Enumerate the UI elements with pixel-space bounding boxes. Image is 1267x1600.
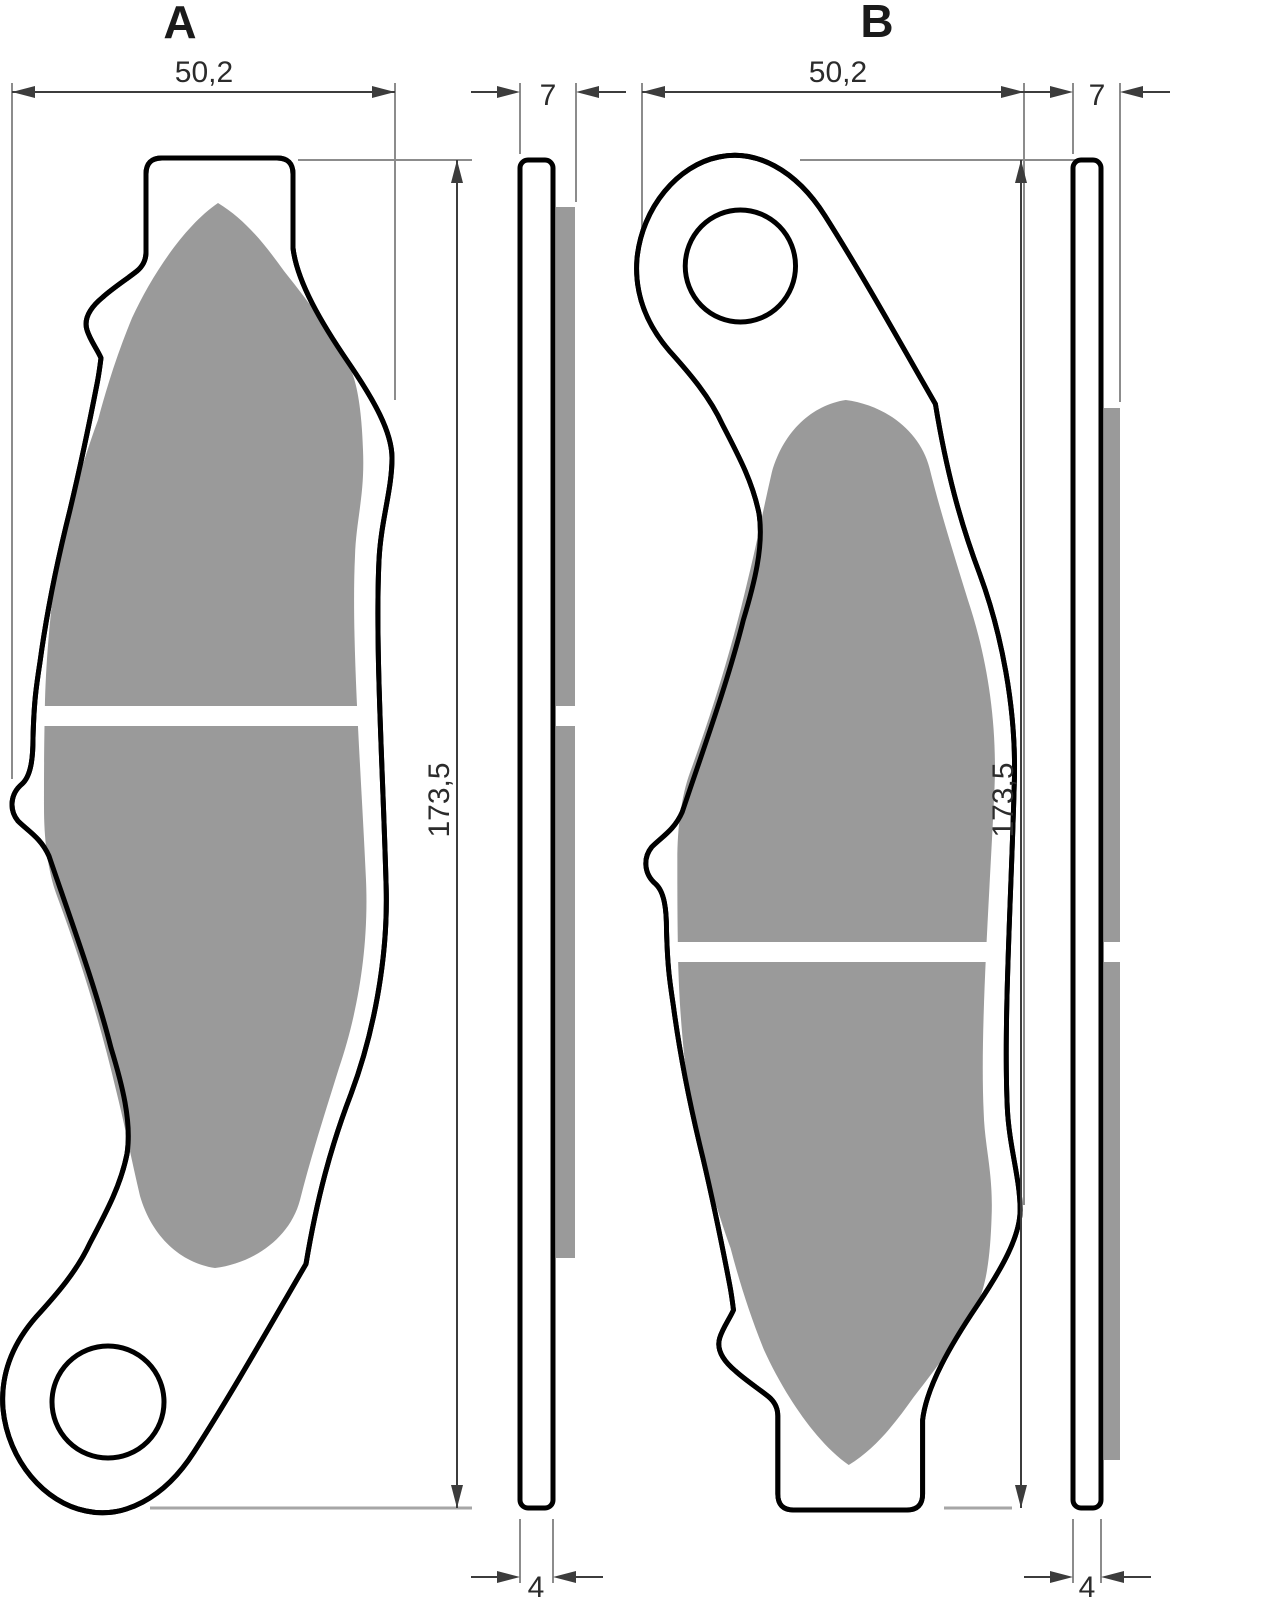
a-height-arrow-top	[451, 160, 463, 183]
pad-b-mounting-hole	[685, 210, 795, 322]
a-height-arrow-bottom	[451, 1485, 463, 1508]
a-thickness-arrow-right	[576, 86, 599, 98]
technical-drawing: A	[0, 0, 1267, 1600]
b-plate-value: 4	[1079, 1571, 1096, 1600]
view-a-label: A	[163, 0, 196, 48]
drawing-page: A	[0, 0, 1267, 1600]
b-thickness-dimension: 7	[1024, 79, 1170, 112]
view-b-label: B	[860, 0, 893, 47]
b-thickness-value: 7	[1089, 79, 1106, 112]
pad-a-wear-groove	[40, 706, 375, 726]
pad-b-front-view	[637, 155, 1021, 1510]
b-plate-dimension: 4	[1024, 1571, 1151, 1600]
view-a: A	[3, 0, 626, 1600]
pad-a-friction-material	[44, 203, 366, 1268]
b-plate-arrow-right	[1101, 1571, 1124, 1583]
pad-b-friction-material	[677, 400, 995, 1465]
a-width-value: 50,2	[175, 56, 233, 89]
a-plate-arrow-left	[497, 1571, 520, 1583]
b-thickness-arrow-left	[1050, 86, 1073, 98]
pad-a-side-groove-notch	[554, 706, 580, 726]
a-thickness-dimension: 7	[471, 79, 626, 112]
b-width-dimension: 50,2	[642, 56, 1024, 98]
pad-a-side-friction-strip	[556, 207, 575, 1258]
pad-b-wear-groove	[673, 942, 1003, 962]
b-height-dimension: 173,5	[987, 160, 1027, 1508]
pad-b-side-groove-notch	[1102, 942, 1122, 962]
b-thickness-arrow-right	[1120, 86, 1143, 98]
a-plate-arrow-right	[553, 1571, 576, 1583]
a-thickness-arrow-left	[497, 86, 520, 98]
pad-b-side-backplate	[1073, 160, 1101, 1508]
a-height-dimension: 173,5	[423, 160, 463, 1508]
pad-b-side-friction-strip	[1104, 408, 1120, 1460]
pad-a-mounting-hole	[52, 1346, 164, 1458]
b-height-value: 173,5	[987, 762, 1020, 837]
b-plate-arrow-left	[1050, 1571, 1073, 1583]
a-width-dimension: 50,2	[12, 56, 395, 98]
b-width-value: 50,2	[809, 56, 867, 89]
b-height-arrow-top	[1015, 160, 1027, 183]
a-plate-value: 4	[528, 1571, 545, 1600]
b-width-arrow-right	[1001, 86, 1024, 98]
pad-b-side-view	[1073, 160, 1122, 1508]
a-height-value: 173,5	[423, 762, 456, 837]
b-height-arrow-bottom	[1015, 1485, 1027, 1508]
a-width-arrow-left	[12, 86, 35, 98]
pad-a-front-view	[3, 158, 392, 1513]
a-plate-dimension: 4	[471, 1571, 603, 1600]
pad-a-side-backplate	[520, 160, 553, 1508]
a-thickness-value: 7	[540, 79, 557, 112]
pad-a-side-view	[520, 160, 580, 1508]
view-b: B	[637, 0, 1170, 1600]
a-width-arrow-right	[372, 86, 395, 98]
b-width-arrow-left	[642, 86, 665, 98]
